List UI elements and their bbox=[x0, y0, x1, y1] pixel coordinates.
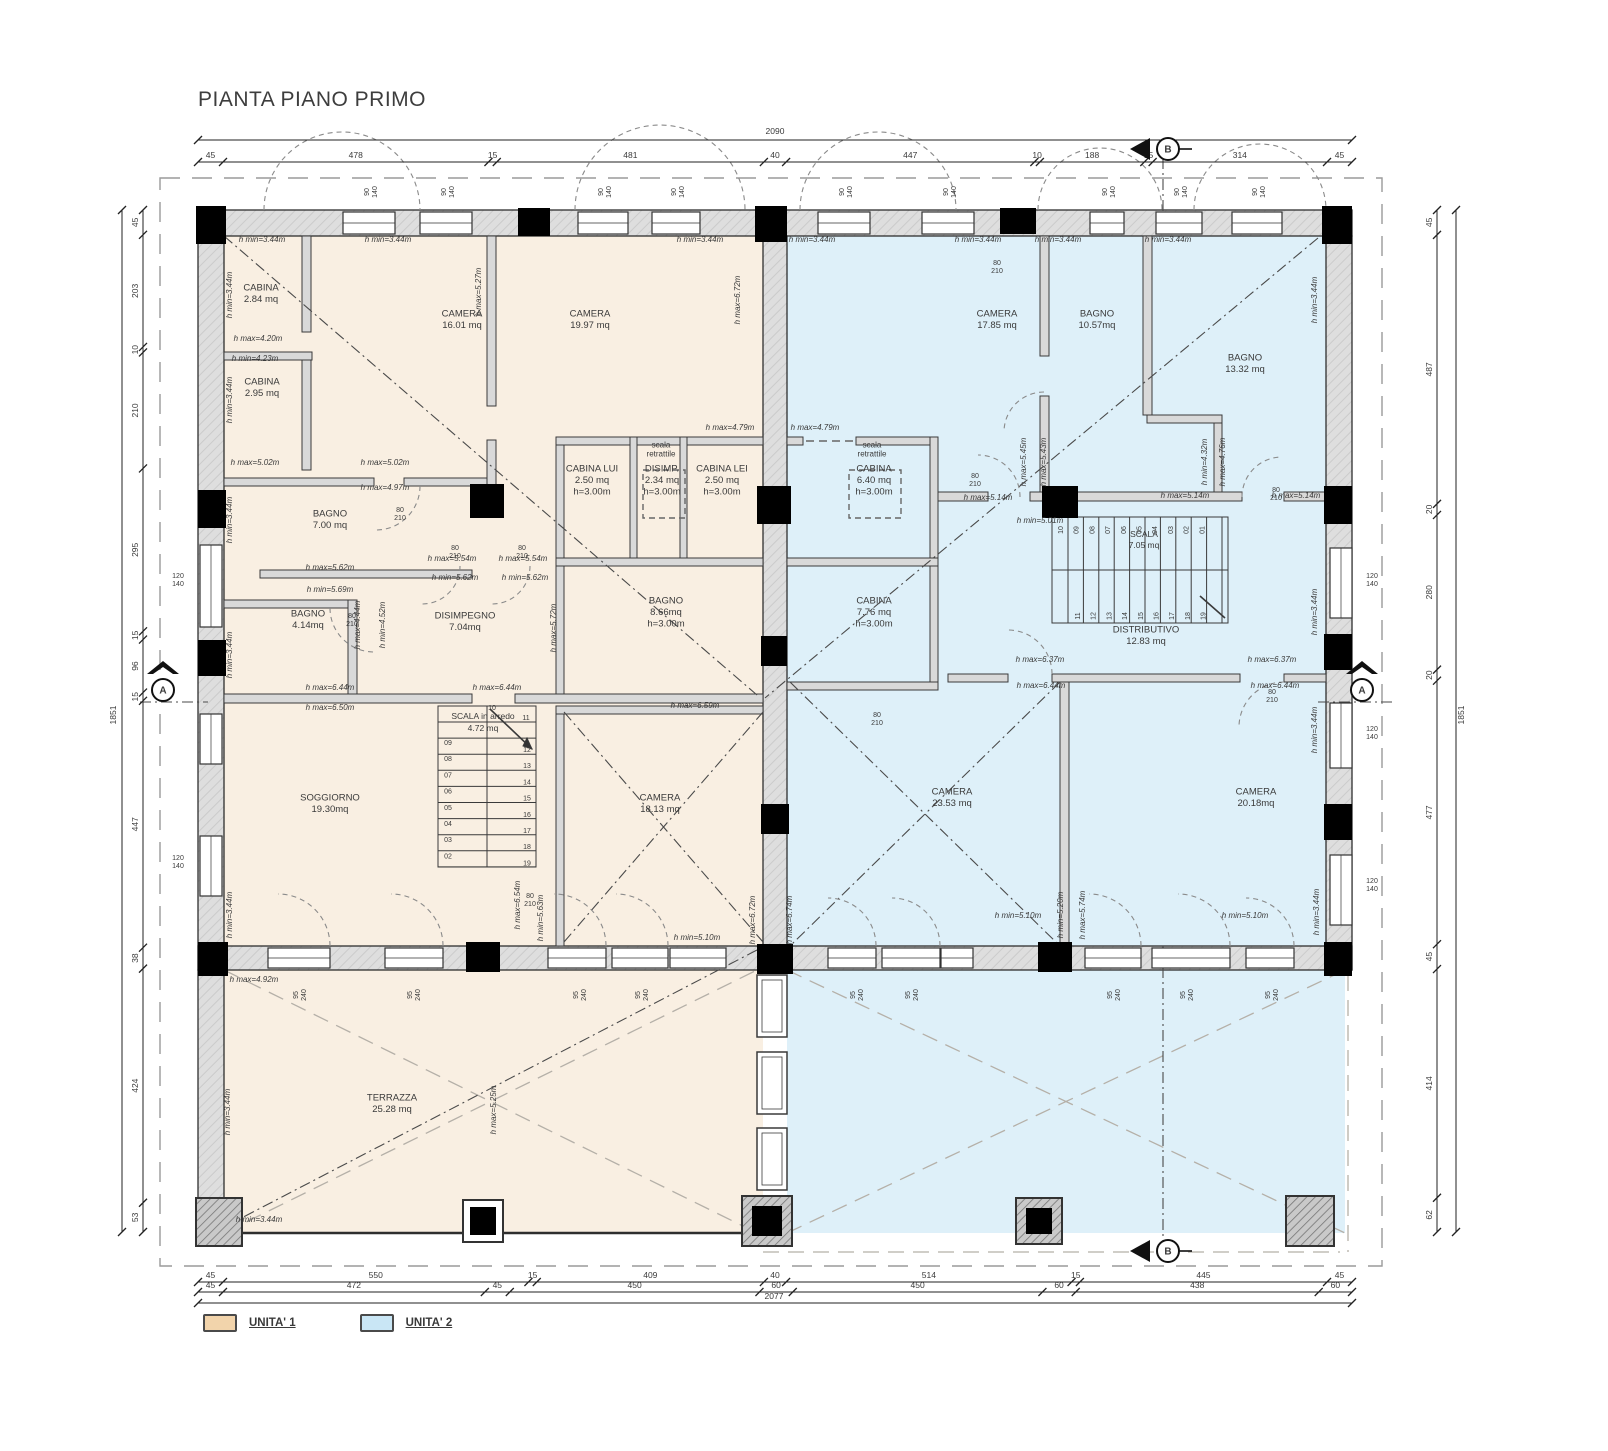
stair-number: 05 bbox=[1137, 526, 1144, 534]
room-label: SOGGIORNO bbox=[300, 792, 360, 803]
height-label: h min=5.10m bbox=[995, 911, 1042, 920]
dim-label: 447 bbox=[903, 150, 917, 160]
room-label: CABINA bbox=[243, 282, 279, 293]
stair-number: 10 bbox=[488, 705, 496, 712]
room-label: 18.13 mq bbox=[640, 804, 680, 815]
dim-label: 472 bbox=[347, 1280, 361, 1290]
dim-label: 295 bbox=[130, 542, 140, 556]
room-label: 10.57mq bbox=[1079, 320, 1116, 331]
height-label: h min=4.52m bbox=[378, 601, 387, 648]
height-label: h min=4.23m bbox=[232, 354, 279, 363]
height-label: h min=3.44m bbox=[1145, 235, 1192, 244]
dim-label: 514 bbox=[922, 1270, 936, 1280]
room-label: 16.01 mq bbox=[442, 320, 482, 331]
dim-label: 53 bbox=[130, 1212, 140, 1222]
height-label: h min=3.44m bbox=[223, 1088, 232, 1135]
stair-number: 12 bbox=[523, 747, 531, 754]
height-label: h min=5.63m bbox=[536, 894, 545, 941]
room-label: 7.05 mq bbox=[1129, 540, 1160, 550]
dim-label: 450 bbox=[910, 1280, 924, 1290]
dim-label: 10 bbox=[130, 345, 140, 355]
room-label: 2.50 mq bbox=[575, 475, 609, 486]
size-label: 120140 bbox=[172, 855, 184, 870]
unit2-swatch bbox=[360, 1314, 394, 1332]
size-label: 90140 bbox=[441, 186, 456, 198]
stair-number: 05 bbox=[444, 805, 452, 812]
room-label: 25.28 mq bbox=[372, 1104, 412, 1115]
height-label: h min=3.44m bbox=[365, 235, 412, 244]
floor-plan-drawing: CABINA2.84 mqCABINA2.95 mqCAMERA16.01 mq… bbox=[0, 0, 1608, 1451]
height-label: h min=5.69m bbox=[307, 585, 354, 594]
height-label: h min=5.10m bbox=[674, 933, 721, 942]
dim-label: 45 bbox=[130, 217, 140, 227]
stair-number: 09 bbox=[1074, 526, 1081, 534]
room-label: scala bbox=[863, 441, 882, 450]
dim-label: 15 bbox=[488, 150, 498, 160]
room-label: 4.14mq bbox=[292, 620, 324, 631]
height-label: h min=3.44m bbox=[1310, 588, 1319, 635]
dim-label: 62 bbox=[1424, 1210, 1434, 1220]
stair-number: 13 bbox=[523, 763, 531, 770]
stair-number: 15 bbox=[1138, 612, 1145, 620]
room-label: 19.97 mq bbox=[570, 320, 610, 331]
dim-label: 15 bbox=[130, 630, 140, 640]
room-label: CABINA bbox=[244, 376, 280, 387]
room-label: DISIMPEGNO bbox=[435, 610, 496, 621]
room-label: CABINA LUI bbox=[566, 464, 618, 475]
dim-total: 2077 bbox=[765, 1291, 784, 1301]
height-label: h min=3.44m bbox=[225, 271, 234, 318]
height-label: h min=3.44m bbox=[225, 891, 234, 938]
height-label: h max=6.54m bbox=[513, 880, 522, 929]
height-label: h max=5.72m bbox=[549, 603, 558, 652]
dim-label: 478 bbox=[349, 150, 363, 160]
dim-label: 96 bbox=[130, 661, 140, 671]
size-label: 90140 bbox=[364, 186, 379, 198]
dim-label: 15 bbox=[130, 692, 140, 702]
stair-number: 01 bbox=[1199, 526, 1206, 534]
dim-label: 280 bbox=[1424, 585, 1434, 599]
room-label: h=3.00m bbox=[643, 487, 680, 498]
size-label: 120140 bbox=[1366, 726, 1378, 741]
height-label: h min=5.10m bbox=[1222, 911, 1269, 920]
height-label: h min=5.01m bbox=[1017, 516, 1064, 525]
height-label: h max=6.74m bbox=[785, 895, 794, 944]
room-label: 6.40 mq bbox=[857, 475, 891, 486]
section-letter: A bbox=[1358, 686, 1365, 697]
room-label: 2.84 mq bbox=[244, 294, 278, 305]
room-label: h=3.00m bbox=[855, 487, 892, 498]
height-label: h max=5.02m bbox=[361, 458, 410, 467]
height-label: h min=3.44m bbox=[239, 235, 286, 244]
dim-label: 15 bbox=[528, 1270, 538, 1280]
stair-number: 11 bbox=[1075, 612, 1082, 619]
stair-number: 09 bbox=[444, 740, 452, 747]
height-label: h max=6.37m bbox=[1248, 655, 1297, 664]
dim-label: 10 bbox=[1032, 150, 1042, 160]
height-label: h max=5.74m bbox=[1078, 890, 1087, 939]
stair-number: 14 bbox=[1122, 612, 1129, 620]
section-letter: A bbox=[159, 686, 166, 697]
room-label: 23.53 mq bbox=[932, 798, 972, 809]
dim-label: 550 bbox=[369, 1270, 383, 1280]
height-label: h max=6.44m bbox=[473, 683, 522, 692]
size-label: 120140 bbox=[172, 573, 184, 588]
stair-number: 17 bbox=[523, 828, 531, 835]
room-label: CABINA LEI bbox=[696, 464, 748, 475]
stair-number: 13 bbox=[1106, 612, 1113, 620]
dim-label: 20 bbox=[1424, 504, 1434, 514]
dim-label: 45 bbox=[1424, 217, 1434, 227]
dim-label: 45 bbox=[1335, 150, 1345, 160]
height-label: h min=3.44m bbox=[955, 235, 1002, 244]
height-label: h min=5.62m bbox=[502, 573, 549, 582]
height-label: h min=3.44m bbox=[225, 376, 234, 423]
stair-number: 03 bbox=[444, 837, 452, 844]
unit2-label: UNITA' 2 bbox=[406, 1317, 453, 1329]
floor-plan-page: PIANTA PIANO PRIMO bbox=[0, 0, 1608, 1451]
room-label: CAMERA bbox=[977, 308, 1018, 319]
height-label: h min=4.32m bbox=[1200, 438, 1209, 485]
shaft-column bbox=[757, 975, 787, 1190]
height-label: h max=6.37m bbox=[1016, 655, 1065, 664]
stair-number: 10 bbox=[1058, 526, 1065, 534]
room-label: TERRAZZA bbox=[367, 1092, 418, 1103]
room-label: 13.32 mq bbox=[1225, 364, 1265, 375]
dim-label: 188 bbox=[1085, 150, 1099, 160]
stair-number: 15 bbox=[523, 796, 531, 803]
dim-label: 15 bbox=[1071, 1270, 1081, 1280]
dim-label: 438 bbox=[1190, 1280, 1204, 1290]
room-label: 19.30mq bbox=[312, 804, 349, 815]
room-label: 4.72 mq bbox=[468, 723, 499, 733]
height-label: h max=5.14m bbox=[1161, 491, 1210, 500]
height-label: h min=3.44m bbox=[1310, 276, 1319, 323]
size-label: 90140 bbox=[1102, 186, 1117, 198]
room-label: retrattile bbox=[858, 450, 887, 459]
dim-label: 60 bbox=[771, 1280, 781, 1290]
height-label: h min=3.44m bbox=[236, 1215, 283, 1224]
room-label: CAMERA bbox=[640, 792, 681, 803]
stair-number: 11 bbox=[522, 715, 529, 722]
room-label: 7.76 mq bbox=[857, 607, 891, 618]
size-label: 120140 bbox=[1366, 573, 1378, 588]
height-label: h min=5.20m bbox=[1056, 891, 1065, 938]
dim-label: 447 bbox=[130, 817, 140, 831]
room-label: 2.34 mq bbox=[645, 475, 679, 486]
height-label: h max=4.76m bbox=[1218, 437, 1227, 486]
size-label: 90140 bbox=[671, 186, 686, 198]
size-label: 90140 bbox=[598, 186, 613, 198]
dim-label: 481 bbox=[623, 150, 637, 160]
room-label: h=3.00m bbox=[573, 487, 610, 498]
dim-total: 1851 bbox=[1456, 705, 1466, 724]
height-label: h max=4.20m bbox=[234, 334, 283, 343]
stair-number: 18 bbox=[523, 844, 531, 851]
room-label: DISTRIBUTIVO bbox=[1113, 624, 1180, 635]
height-label: h max=5.62m bbox=[306, 563, 355, 572]
stair-number: 16 bbox=[1154, 612, 1161, 620]
room-label: BAGNO bbox=[1080, 308, 1114, 319]
height-label: h max=4.92m bbox=[230, 975, 279, 984]
stair-number: 17 bbox=[1169, 612, 1176, 620]
height-label: h max=6.44m bbox=[306, 683, 355, 692]
height-label: h min=5.62m bbox=[432, 573, 479, 582]
height-label: h min=3.44m bbox=[225, 496, 234, 543]
room-label: DISIMP. bbox=[645, 464, 679, 475]
dim-label: 477 bbox=[1424, 805, 1434, 819]
dim-label: 45 bbox=[206, 150, 216, 160]
room-label: retrattile bbox=[647, 450, 676, 459]
room-label: CAMERA bbox=[570, 308, 611, 319]
size-label: 90140 bbox=[839, 186, 854, 198]
room-label: h=3.00m bbox=[647, 619, 684, 630]
size-label: 90140 bbox=[1252, 186, 1267, 198]
room-label: 8.66mq bbox=[650, 607, 682, 618]
room-label: scala bbox=[652, 441, 671, 450]
dim-label: 45 bbox=[1424, 952, 1434, 962]
height-label: h max=5.25m bbox=[489, 1085, 498, 1134]
height-label: h max=4.79m bbox=[791, 423, 840, 432]
dim-label: 445 bbox=[1196, 1270, 1210, 1280]
room-label: BAGNO bbox=[649, 596, 683, 607]
room-label: h=3.00m bbox=[855, 619, 892, 630]
room-label: CABINA bbox=[856, 464, 892, 475]
height-label: h min=3.44m bbox=[677, 235, 724, 244]
section-letter: B bbox=[1164, 145, 1171, 156]
size-label: 90140 bbox=[1174, 186, 1189, 198]
room-label: 2.50 mq bbox=[705, 475, 739, 486]
dim-label: 414 bbox=[1424, 1076, 1434, 1090]
dim-label: 45 bbox=[206, 1270, 216, 1280]
stair-number: 04 bbox=[444, 821, 452, 828]
stair-number: 16 bbox=[523, 812, 531, 819]
dim-label: 40 bbox=[770, 150, 780, 160]
dim-label: 424 bbox=[130, 1078, 140, 1092]
dim-label: 314 bbox=[1233, 150, 1247, 160]
dim-label: 210 bbox=[130, 403, 140, 417]
room-label: BAGNO bbox=[313, 508, 347, 519]
height-label: h max=6.72m bbox=[733, 275, 742, 324]
legend: UNITA' 1 UNITA' 2 bbox=[203, 1314, 452, 1332]
stair-number: 04 bbox=[1152, 526, 1159, 534]
room-label: 17.85 mq bbox=[977, 320, 1017, 331]
height-label: h min=3.44m bbox=[789, 235, 836, 244]
stair-number: 06 bbox=[444, 789, 452, 796]
stair-number: 02 bbox=[1184, 526, 1191, 534]
dim-label: 38 bbox=[130, 953, 140, 963]
legend-item-unit1: UNITA' 1 bbox=[203, 1314, 296, 1332]
stair-number: 07 bbox=[1105, 526, 1112, 534]
dim-total: 2090 bbox=[766, 126, 785, 136]
dim-total: 1851 bbox=[108, 705, 118, 724]
dim-label: 203 bbox=[130, 284, 140, 298]
stair-number: 14 bbox=[523, 779, 531, 786]
height-label: h min=3.44m bbox=[225, 631, 234, 678]
height-label: h max=6.72m bbox=[748, 895, 757, 944]
room-label: 20.18mq bbox=[1238, 798, 1275, 809]
room-label: CAMERA bbox=[1236, 786, 1277, 797]
room-label: CABINA bbox=[856, 596, 892, 607]
unit1-label: UNITA' 1 bbox=[249, 1317, 296, 1329]
stair-number: 19 bbox=[523, 860, 531, 867]
dim-label: 60 bbox=[1054, 1280, 1064, 1290]
height-label: h max=4.97m bbox=[361, 483, 410, 492]
room-label: h=3.00m bbox=[703, 487, 740, 498]
height-label: h min=3.44m bbox=[1035, 235, 1082, 244]
size-label: 120140 bbox=[1366, 878, 1378, 893]
stair-number: 02 bbox=[444, 853, 452, 860]
height-label: h max=5.45m bbox=[1019, 437, 1028, 486]
dim-label: 409 bbox=[643, 1270, 657, 1280]
height-label: h max=5.43m bbox=[1039, 437, 1048, 486]
room-label: 7.00 mq bbox=[313, 520, 347, 531]
height-label: h min=3.44m bbox=[1312, 888, 1321, 935]
dim-label: 45 bbox=[493, 1280, 503, 1290]
height-label: h max=4.79m bbox=[706, 423, 755, 432]
room-label: BAGNO bbox=[1228, 352, 1262, 363]
room-label: 7.04mq bbox=[449, 622, 481, 633]
dim-label: 487 bbox=[1424, 362, 1434, 376]
room-label: CAMERA bbox=[932, 786, 973, 797]
stair-number: 08 bbox=[444, 756, 452, 763]
stair-number: 07 bbox=[444, 772, 452, 779]
section-letter: B bbox=[1164, 1247, 1171, 1258]
legend-item-unit2: UNITA' 2 bbox=[360, 1314, 453, 1332]
height-label: h max=6.59m bbox=[671, 701, 720, 710]
dim-label: 45 bbox=[206, 1280, 216, 1290]
dim-label: 60 bbox=[1331, 1280, 1341, 1290]
stair-number: 18 bbox=[1185, 612, 1192, 620]
height-label: h max=5.27m bbox=[474, 267, 483, 316]
room-label: BAGNO bbox=[291, 608, 325, 619]
height-label: h max=6.44m bbox=[1017, 681, 1066, 690]
room-label: 2.95 mq bbox=[245, 388, 279, 399]
unit1-swatch bbox=[203, 1314, 237, 1332]
stair-number: 06 bbox=[1121, 526, 1128, 534]
height-label: h max=5.14m bbox=[964, 493, 1013, 502]
room-label: SCALA in arredo bbox=[451, 711, 515, 721]
dim-label: 20 bbox=[1424, 670, 1434, 680]
height-label: h max=5.02m bbox=[231, 458, 280, 467]
stair-number: 08 bbox=[1089, 526, 1096, 534]
size-label: 90140 bbox=[943, 186, 958, 198]
stair-number: 19 bbox=[1201, 612, 1208, 620]
height-label: h min=3.44m bbox=[1310, 706, 1319, 753]
dim-label: 40 bbox=[770, 1270, 780, 1280]
room-label: 12.83 mq bbox=[1126, 636, 1166, 647]
dim-label: 45 bbox=[1335, 1270, 1345, 1280]
dim-label: 450 bbox=[628, 1280, 642, 1290]
stair-number: 12 bbox=[1091, 612, 1098, 620]
stair-number: 03 bbox=[1168, 526, 1175, 534]
height-label: h max=6.50m bbox=[306, 703, 355, 712]
